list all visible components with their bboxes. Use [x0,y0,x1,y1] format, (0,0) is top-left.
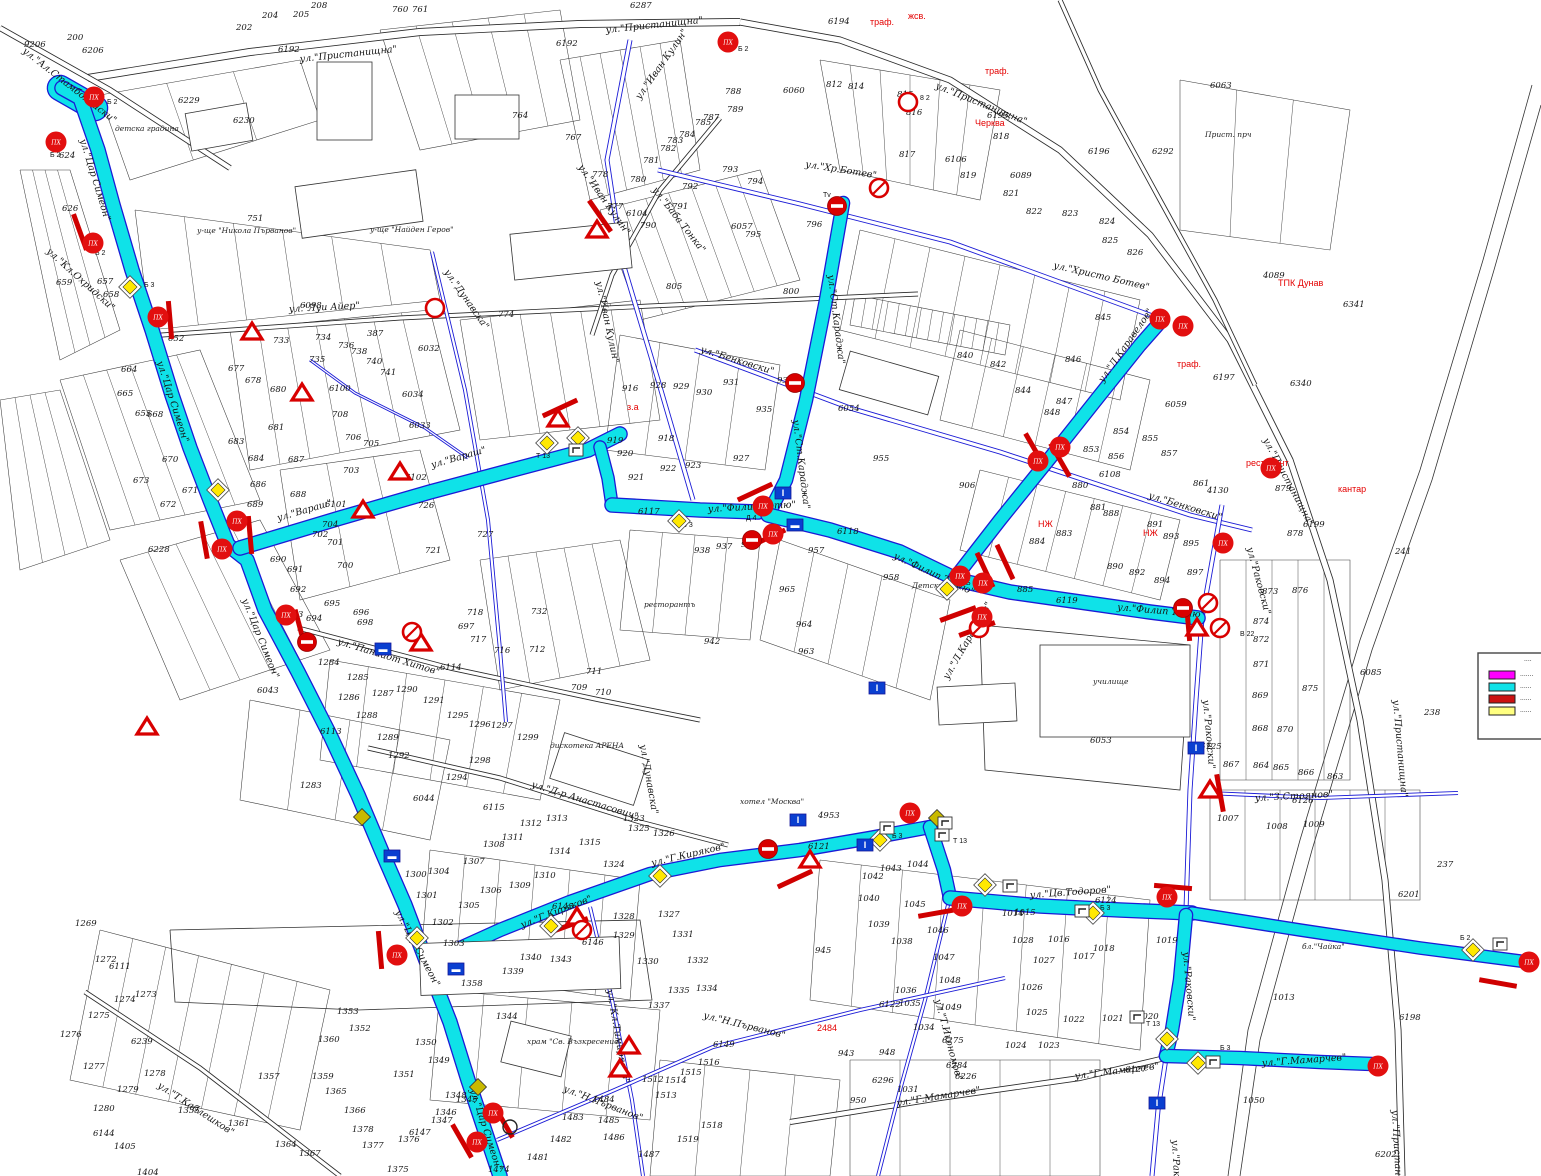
parcel-number: 202 [235,23,252,33]
parcel-line [592,544,620,666]
prohibition-ring-icon [899,93,917,111]
parcel-number: 691 [287,565,303,575]
map-page: 2009206620620220420520861926192760761764… [0,0,1541,1176]
parcel-line [1035,355,1055,445]
blue-sign-glyph: I [797,815,800,825]
parcel-number: 842 [990,360,1006,370]
parcel-number: 812 [826,80,842,90]
parcel-number: 706 [345,433,362,443]
parcel-number: 727 [477,530,494,540]
parcel-number: 1017 [1073,952,1095,962]
parcel-number: 6149 [713,1040,735,1050]
parcel-number: 1039 [868,920,890,930]
parcel-line [939,312,944,342]
street-name: ул."Иван Кулин" [633,27,690,102]
parcel-number-layer: 2009206620620220420520861926192760761764… [24,1,1454,1176]
parcel-number: 1340 [520,953,542,963]
parcel-number: 1275 [88,1011,110,1021]
parcel-number: 814 [848,82,864,92]
parcel-number: 6194 [828,17,850,27]
parcel-number: 655 [135,409,151,419]
parcel-block-outline [480,540,650,690]
parcel-number: 6033 [409,421,431,431]
map-canvas[interactable]: 2009206620620220420520861926192760761764… [0,0,1541,1176]
sign-code: Б 2 [50,152,61,159]
hydrant-label: ПХ [1054,444,1065,451]
parcel-line [872,299,877,329]
parcel-line [983,321,988,351]
parcel-number: 698 [357,618,374,628]
parcel-line [524,14,548,126]
parcel-line [905,306,910,336]
parcel-number: 1047 [933,953,955,963]
parcel-number: 751 [247,214,263,224]
barrier-bar-icon [995,544,1016,581]
parcel-number: 205 [292,10,309,20]
parcel-number: 692 [290,585,306,595]
hydrant-label: ПХ [1217,540,1228,547]
parcel-number: 1485 [598,1116,620,1126]
parcel-number: 681 [268,423,284,433]
hydrant-label: ПХ [977,580,988,587]
parcel-number: 848 [1044,408,1061,418]
parcel-number: 923 [685,461,701,471]
parcel-number: 1036 [895,986,917,996]
parcel-number: 890 [1107,562,1124,572]
parcel-number: 937 [716,542,733,552]
sign-code: Т 13 [536,453,550,460]
parcel-number: 6228 [148,545,170,555]
parcel-number: 865 [1273,763,1289,773]
hydrant-label: ПХ [1372,1063,1383,1070]
parcel-number: 916 [622,384,639,394]
parcel-number: 6341 [1343,300,1365,310]
parcel-number: 6115 [483,803,505,813]
parcel-number: 1044 [907,860,929,870]
no-entry-bar [762,847,774,851]
red-annotation: траф. [985,66,1009,76]
parcel-number: 945 [815,946,831,956]
parcel-number: 857 [1161,449,1178,459]
parcel-number: 922 [660,464,676,474]
parcel-line [933,80,940,190]
parcel-number: 1327 [658,910,680,920]
parcel-number: 626 [62,204,79,214]
parcel-line [896,588,916,688]
parcel-number: 774 [498,310,514,320]
street-name: ул."Н.Първанов" [701,1010,786,1041]
parcel-number: 780 [630,175,647,185]
parcel-number: 711 [586,667,602,677]
parcel-number: 1343 [550,955,572,965]
parcel-number: 760 [392,5,409,15]
street-name: ул."Раковски" [1200,698,1217,769]
parcel-number: 1022 [1063,1015,1085,1025]
sign-code: В 22 [1240,631,1255,638]
parcel-number: 826 [1127,248,1144,258]
parcel-number: 844 [1015,386,1031,396]
parcel-number: 6118 [837,527,859,537]
barrier-bar-icon [1479,977,1517,989]
barrier-bar-icon [777,869,814,890]
parcel-number: 793 [722,165,738,175]
parcel-number: 1334 [696,984,718,994]
parcel-number: 1048 [939,976,961,986]
hydrant-label: ПХ [1265,465,1276,472]
parcel-line [383,730,401,830]
parcel-number: 1015 [1014,908,1036,918]
parcel-number: 965 [779,585,795,595]
parcel-number: 929 [673,382,690,392]
parcel-number: 840 [957,351,974,361]
hydrant-label: ПХ [152,314,163,321]
parcel-number: 792 [682,182,698,192]
hydrant-label: ПХ [767,531,778,538]
red-annotation: НЖ [1038,519,1053,529]
parcel-number: 867 [1223,760,1240,770]
parcel-number: 1009 [1303,820,1325,830]
building-outline [185,103,253,151]
parcel-number: 1357 [258,1072,280,1082]
parcel-number: 921 [628,473,644,483]
parcel-number: 785 [695,118,711,128]
parcel-number: 938 [694,546,711,556]
parcel-number: 782 [660,144,676,154]
info-sign-icon [880,822,894,834]
parcel-number: 705 [363,439,379,449]
parcel-number: 6108 [1099,470,1121,480]
parcel-number: 690 [270,555,287,565]
parcel-number: 866 [1298,768,1315,778]
hydrant-label: ПХ [87,240,98,247]
parcel-number: 1324 [603,860,625,870]
parcel-block-outline [1180,80,1350,250]
parcel-number: 875 [1302,684,1318,694]
no-entry-bar [746,538,758,542]
parcel-number: 701 [327,538,343,548]
street-name: ул."Раковски" [1244,545,1273,616]
parcel-line [883,301,888,331]
info-sign-icon [935,829,949,841]
parcel-number: 1034 [913,1023,935,1033]
poi-label: храм "Св. Възкресение" [527,1037,622,1046]
parcel-number: 1285 [347,673,369,683]
hydrant-label: ПХ [88,94,99,101]
hydrant-label: ПХ [1154,316,1165,323]
parcel-number: 6034 [402,390,424,400]
parcel-number: 895 [1183,539,1199,549]
parcel-number: 717 [470,635,487,645]
parcel-line [685,350,700,460]
parcel-number: 876 [1292,586,1309,596]
sign-code: Б 3 [1220,1045,1231,1052]
yield-sign-icon [137,718,157,734]
parcel-line [148,552,210,690]
legend-swatch-route-type-red [1489,695,1515,703]
red-annotation: ТПК Дунав [1278,278,1323,288]
parcel-number: 855 [1142,434,1158,444]
parcel-number: 1349 [428,1056,450,1066]
parcel-number: 6192 [556,39,578,49]
parcel-number: 6085 [1360,668,1382,678]
parcel-number: 1405 [114,1142,136,1152]
parcel-number: 734 [315,333,331,343]
parcel-number: 741 [380,368,396,378]
parcel-number: 950 [850,1096,867,1106]
parcel-number: 1276 [60,1030,82,1040]
info-sign-icon [569,444,583,456]
blue-sign-glyph: I [1195,743,1198,753]
yield-sign-icon [292,384,312,400]
parcel-line [862,576,882,676]
poi-label: дискотека АРЕНА [550,741,624,750]
parcel-number: 868 [1252,724,1269,734]
parcel-number: 4130 [1206,486,1229,496]
parcel-number: 710 [595,688,612,698]
parcel-number: 796 [806,220,823,230]
parcel-number: 1347 [431,1116,453,1126]
parcel-number: 6053 [1090,736,1112,746]
parcel-number: 1312 [520,819,542,829]
parcel-number: 6106 [945,155,967,165]
hydrant-label: ПХ [1032,458,1043,465]
parcel-number: 847 [1056,397,1073,407]
parcel-number: 721 [425,546,441,556]
sign-code: Т 13 [953,838,967,845]
parcel-number: 6198 [1399,1013,1421,1023]
parcel-number: 931 [723,378,739,388]
parcel-number: 726 [418,501,435,511]
parcel-line [288,710,301,810]
parcel-number: 1286 [338,693,360,703]
street-name: ул."Баба Тонка" [649,184,708,255]
poi-label: детска градина [115,124,179,133]
parcel-number: 906 [959,481,976,491]
parcel-number: 1358 [461,979,483,989]
parcel-line [30,395,65,555]
parcel-number: 1287 [372,689,394,699]
parcel-line [176,544,240,680]
parcel-number: 1277 [83,1062,105,1072]
parcel-number: 1043 [880,864,902,874]
parcel-number: 1283 [300,781,322,791]
street-name: ул."Бенковски" [698,344,775,377]
parcel-number: 854 [1113,427,1129,437]
parcel-number: 935 [756,405,772,415]
route-highlight [62,88,500,1176]
parcel-number: 1481 [527,1153,549,1163]
parcel-number: 1331 [672,930,694,940]
parcel-number: 688 [290,490,307,500]
parcel-number: 6229 [178,96,200,106]
parcel-number: 238 [1423,708,1441,718]
hydrant-label: ПХ [956,903,967,910]
poi-label: бл."Чайка" [1302,942,1345,951]
parcel-number: 6100 [329,384,351,394]
parcel-number: 1273 [135,990,157,1000]
parcel-number: 6230 [233,116,255,126]
hydrant-label: ПХ [231,518,242,525]
parcel-number: 6196 [1088,147,1110,157]
hydrant-label: ПХ [1177,323,1188,330]
parcel-number: 1375 [387,1165,409,1175]
parcel-number: 805 [666,282,682,292]
parcel-number: 1339 [502,967,524,977]
parcel-line [875,239,895,339]
parcel-number: 1294 [446,773,468,783]
parcel-number: 1404 [137,1168,159,1176]
parcel-number: 1295 [447,711,469,721]
legend-label-route-type-cyan: ······ [1520,685,1532,692]
parcel-number: 824 [1099,217,1115,227]
parcel-number: 1031 [897,1085,919,1095]
parcel-number: 821 [1003,189,1019,199]
parcel-number: 825 [1102,236,1118,246]
parcel-number: 764 [512,111,528,121]
parcel-number: 665 [117,389,133,399]
no-entry-bar [301,640,313,644]
parcel-number: 878 [1287,529,1304,539]
parcel-number: 963 [798,647,814,657]
building-outline [1040,645,1190,737]
red-annotation: 2484 [817,1023,837,1033]
building-outline [455,95,519,139]
parcel-number: 955 [873,454,889,464]
parcel-number: 716 [494,646,511,656]
info-sign-icon [1493,938,1507,950]
barrier-bar-icon [198,521,210,559]
parcel-number: 6060 [783,86,805,96]
parcel-line [972,338,992,428]
street-name: ул."Цар Симеон" [467,1087,504,1172]
parcel-number: 703 [343,466,359,476]
parcel-number: 1310 [534,871,556,881]
parcel-number: 1289 [377,733,399,743]
parcel-number: 1326 [653,829,675,839]
poi-label: ресторантъ [644,600,695,609]
parcel-number: 6113 [320,727,342,737]
parcel-number: 387 [367,329,384,339]
parcel-number: 673 [133,476,149,486]
parcel-number: 670 [162,455,179,465]
parcel-number: 1309 [509,881,531,891]
parcel-number: 1018 [1093,944,1115,954]
parcel-number: 740 [366,357,383,367]
sign-code: Б 2 [1460,935,1471,942]
legend-header-dots: ···· [1524,658,1532,665]
parcel-number: 819 [960,171,977,181]
parcel-number: 964 [796,620,812,630]
street-name: ул."Христо Ботев" [1051,260,1150,293]
parcel-number: 695 [324,599,340,609]
parcel-line [564,548,590,672]
yield-sign-icon [390,463,410,479]
parcel-number: 880 [1072,481,1089,491]
legend-swatch-route-type-yellow [1489,707,1515,715]
parcel-number: 6059 [1165,400,1187,410]
parcel-number: 870 [1277,725,1294,735]
parcel-number: 6144 [93,1129,115,1139]
parcel-number: 1016 [1048,935,1070,945]
parcel-line [828,564,848,664]
parcel-number: 6032 [418,344,440,354]
parcel-number: 894 [1154,576,1170,586]
parcel-number: 823 [1062,209,1078,219]
parcel-line [794,552,814,652]
hydrant-label: ПХ [976,614,987,621]
parcel-number: 892 [1129,568,1145,578]
parcel-number: 1278 [144,1069,166,1079]
parcel-number: 788 [725,87,742,97]
parcel-number: 872 [1253,635,1269,645]
parcel-number: 1304 [428,867,450,877]
red-annotation: Черква [975,118,1005,128]
parcel-line [880,70,887,180]
parcel-number: 928 [650,381,667,391]
parcel-number: 1007 [1217,814,1239,824]
sign-code: Б 2 [107,99,118,106]
parcel-number: 1038 [891,937,913,947]
parcel-number: 1359 [312,1072,334,1082]
hydrant-label: ПХ [757,503,768,510]
parcel-number: 624 [59,151,75,161]
parcel-number: 874 [1253,617,1269,627]
parcel-number: 761 [412,5,428,15]
parcel-number: 718 [467,608,484,618]
parcel-number: 1298 [469,756,491,766]
parcel-number: 1332 [687,956,709,966]
parcel-number: 1335 [668,986,690,996]
parcel-number: 659 [56,278,73,288]
blue-sign-glyph: I [782,488,785,498]
hydrant-label: ПХ [904,810,915,817]
no-entry-bar [831,204,843,208]
info-sign-icon [1130,1011,1144,1023]
parcel-line [928,310,933,340]
parcel-number: 6043 [257,686,279,696]
parcel-number: 6122 [879,1000,901,1010]
parcel-number: 1364 [275,1140,297,1150]
parcel-number: 1360 [318,1035,340,1045]
parcel-number: 864 [1253,761,1269,771]
parcel-line [234,973,264,1116]
parcel-number: 883 [1056,529,1072,539]
hydrant-label: ПХ [50,139,61,146]
street-name-layer: ул."Ал.Стамболийски"ул."Кл.Охридски"ул."… [19,15,1409,1176]
sign-code: 8 2 [920,95,930,102]
blue-sign-glyph: ▬ [379,644,388,654]
parcel-number: 1487 [638,1150,660,1160]
parcel-number: 1329 [613,931,635,941]
parcel-number: 918 [658,434,675,444]
parcel-number: 856 [1108,452,1125,462]
parcel-line [332,237,344,310]
parcel-line [725,358,740,466]
sign-code: Т 13 [1146,1021,1160,1028]
parcel-number: 697 [458,622,475,632]
parcel-number: 767 [565,133,582,143]
parcel-number: 800 [783,287,800,297]
parcel-line [910,248,930,348]
parcel-number: 1315 [579,838,601,848]
parcel-number: 1378 [352,1125,374,1135]
parcel-number: 822 [1026,207,1042,217]
parcel-number: 1337 [648,1001,670,1011]
parcel-number: 1376 [398,1135,420,1145]
parcel-number: 1512 [642,1075,664,1085]
parcel-number: 657 [97,277,114,287]
parcel-number: 1328 [613,912,635,922]
